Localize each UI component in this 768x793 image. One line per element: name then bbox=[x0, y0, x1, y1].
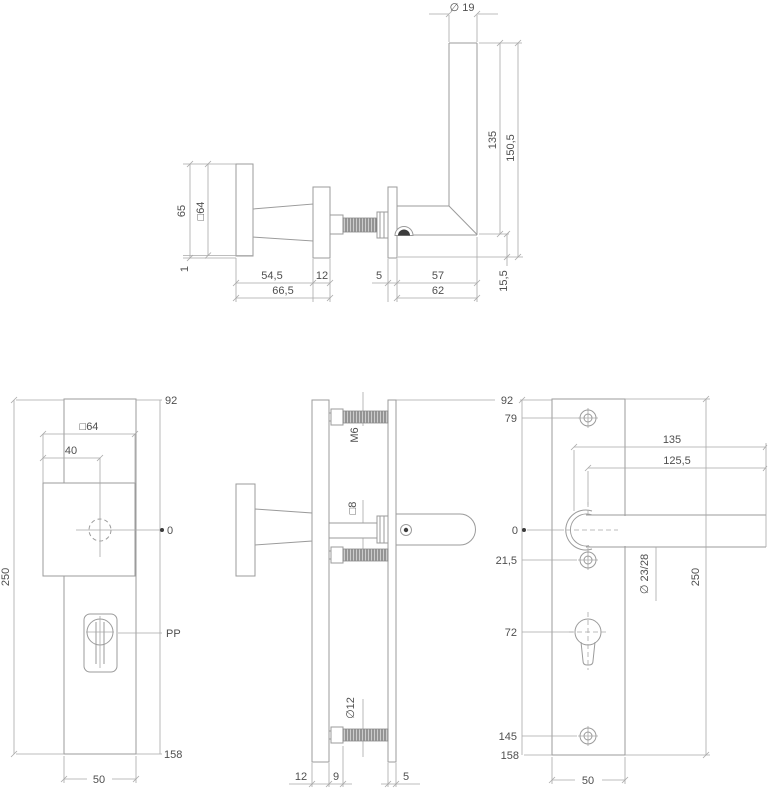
dim-158-back: 158 bbox=[501, 750, 519, 762]
dim-0-front: 0 bbox=[167, 525, 173, 537]
dim-5-section: 5 bbox=[403, 771, 409, 783]
threaded-rod bbox=[343, 218, 377, 232]
dim-5: 5 bbox=[376, 270, 382, 282]
spindle-block bbox=[330, 215, 343, 234]
dim-1: 1 bbox=[179, 266, 191, 272]
washer-stack bbox=[377, 212, 388, 238]
dim-sq8: □8 bbox=[347, 502, 359, 515]
dim-72: 72 bbox=[505, 627, 517, 639]
dome-screw bbox=[395, 227, 413, 236]
knob-neck-section bbox=[255, 509, 312, 545]
plate-back bbox=[552, 399, 625, 755]
rose-inner-arc bbox=[570, 514, 592, 546]
dim-9-section: 9 bbox=[333, 771, 339, 783]
dim-sq64-front: □64 bbox=[80, 421, 99, 433]
dim-1255: 125,5 bbox=[663, 455, 691, 467]
screw-dia12-bottom bbox=[329, 727, 388, 743]
side-view-dimensions bbox=[183, 11, 523, 302]
dim-155: 15,5 bbox=[498, 270, 510, 291]
section-view-dimensions bbox=[289, 746, 420, 787]
section-view: M6 □8 ∅12 12 9 5 bbox=[236, 392, 552, 787]
knob-section bbox=[236, 484, 255, 576]
dim-665: 66,5 bbox=[272, 285, 293, 297]
screw-m6-top bbox=[329, 409, 388, 425]
dim-1505: 150,5 bbox=[505, 134, 517, 162]
dim-79: 79 bbox=[505, 413, 517, 425]
dim-135: 135 bbox=[487, 131, 499, 149]
plate-section-inner bbox=[388, 400, 396, 762]
dim-250-front: 250 bbox=[0, 568, 12, 586]
dim-dia12: ∅12 bbox=[345, 697, 357, 719]
cylinder-front bbox=[84, 614, 117, 672]
inner-rose bbox=[313, 187, 330, 258]
dim-135-back: 135 bbox=[663, 434, 681, 446]
dim-250-back: 250 bbox=[690, 568, 702, 586]
front-view-dimensions bbox=[11, 397, 164, 783]
dim-62: 62 bbox=[432, 285, 444, 297]
square-rose-front bbox=[43, 483, 135, 576]
dim-92-back: 92 bbox=[501, 395, 513, 407]
knob-neck bbox=[253, 204, 313, 241]
dim-215: 21,5 bbox=[496, 555, 517, 567]
dim-65: 65 bbox=[176, 205, 188, 217]
front-view: □64 40 92 0 PP 158 250 50 bbox=[0, 395, 182, 786]
dim-dia2328: ∅ 23/28 bbox=[639, 554, 651, 594]
screw-hole-bottom bbox=[578, 726, 598, 746]
grip-section bbox=[396, 514, 475, 545]
cylinder-hole-back bbox=[569, 612, 607, 670]
dim-sq64: □64 bbox=[195, 202, 207, 221]
knob-plate bbox=[236, 164, 253, 256]
dim-57: 57 bbox=[432, 270, 444, 282]
dim-145: 145 bbox=[499, 731, 517, 743]
spindle-collar bbox=[377, 516, 388, 543]
back-view: 92 79 0 21,5 72 145 158 135 125,5 ∅ 23/2… bbox=[496, 395, 767, 787]
dim-12: 12 bbox=[316, 270, 328, 282]
dim-12-section: 12 bbox=[295, 771, 307, 783]
dim-545: 54,5 bbox=[261, 270, 282, 282]
screw-hole-mid bbox=[578, 550, 598, 570]
dim-50-back: 50 bbox=[582, 775, 594, 787]
dim-92-front: 92 bbox=[165, 395, 177, 407]
side-view: ∅ 19 65 □64 1 54,5 12 5 57 66,5 62 135 1… bbox=[176, 2, 523, 302]
label-pp: PP bbox=[166, 628, 181, 640]
dim-50-front: 50 bbox=[93, 774, 105, 786]
dim-158-front: 158 bbox=[164, 749, 182, 761]
screw-mid bbox=[329, 547, 388, 563]
spindle-sq8 bbox=[329, 523, 377, 538]
plate-section-outer bbox=[312, 400, 329, 762]
dim-40: 40 bbox=[65, 445, 77, 457]
dim-m6: M6 bbox=[349, 427, 361, 442]
dim-0-back: 0 bbox=[512, 525, 518, 537]
dim-dia19: ∅ 19 bbox=[450, 2, 475, 14]
screw-hole-top bbox=[578, 408, 598, 428]
outer-rose bbox=[388, 187, 397, 258]
drawing-page: ∅ 19 65 □64 1 54,5 12 5 57 66,5 62 135 1… bbox=[0, 0, 768, 788]
technical-drawing: ∅ 19 65 □64 1 54,5 12 5 57 66,5 62 135 1… bbox=[0, 0, 768, 788]
lever-handle bbox=[397, 43, 477, 235]
